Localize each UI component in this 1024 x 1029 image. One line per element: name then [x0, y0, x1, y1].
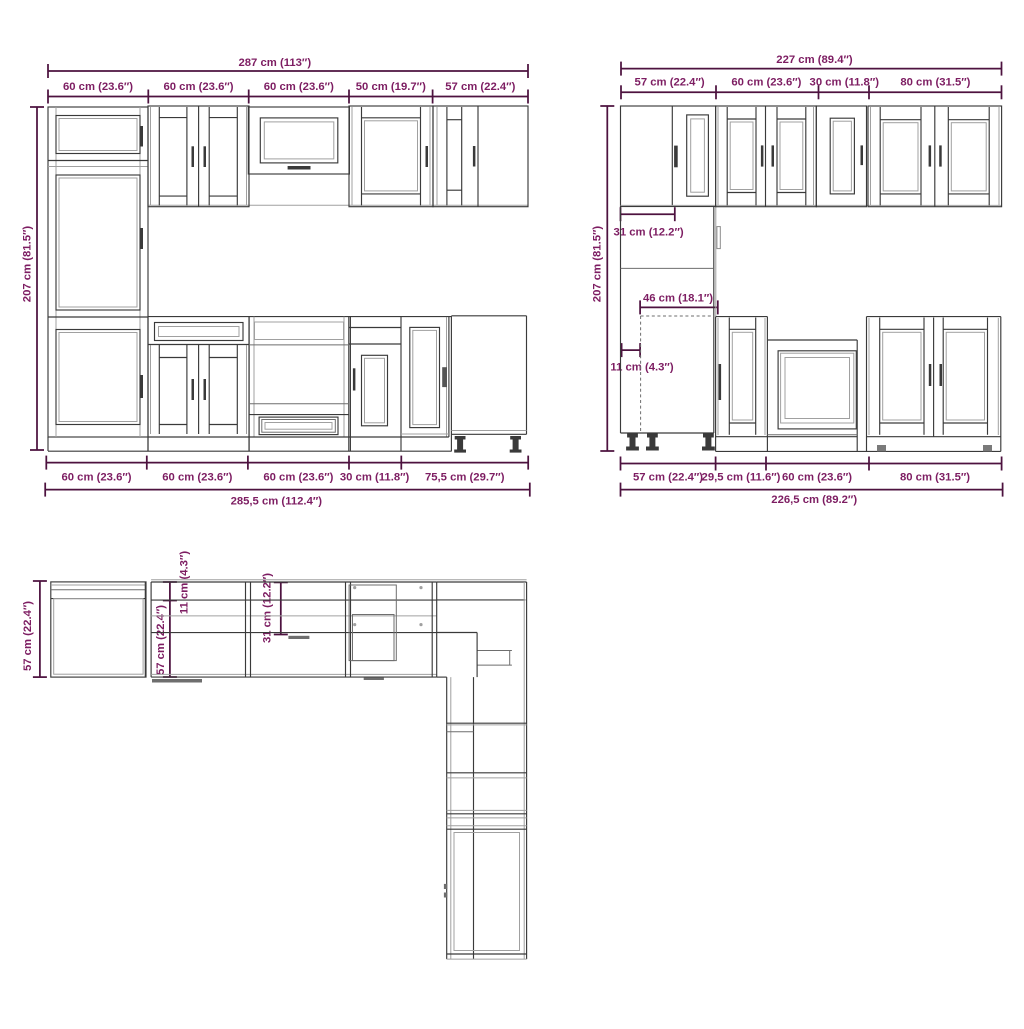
svg-text:57 cm (22.4″): 57 cm (22.4″) [22, 601, 34, 671]
svg-text:29,5 cm (11.6″): 29,5 cm (11.6″) [702, 472, 781, 484]
svg-text:50 cm (19.7″): 50 cm (19.7″) [356, 81, 426, 93]
svg-text:57 cm (22.4″): 57 cm (22.4″) [635, 77, 705, 89]
svg-text:80 cm (31.5″): 80 cm (31.5″) [900, 77, 970, 89]
svg-text:60 cm (23.6″): 60 cm (23.6″) [782, 472, 852, 484]
svg-text:57 cm (22.4″): 57 cm (22.4″) [155, 605, 167, 675]
svg-text:60 cm (23.6″): 60 cm (23.6″) [63, 81, 133, 93]
svg-text:207 cm (81.5″): 207 cm (81.5″) [592, 226, 604, 303]
svg-text:30 cm (11.8″): 30 cm (11.8″) [810, 77, 880, 89]
svg-text:60 cm (23.6″): 60 cm (23.6″) [263, 472, 333, 484]
svg-text:285,5 cm (112.4″): 285,5 cm (112.4″) [231, 496, 323, 508]
svg-text:11 cm (4.3″): 11 cm (4.3″) [610, 362, 673, 374]
svg-text:75,5 cm (29.7″): 75,5 cm (29.7″) [425, 472, 505, 484]
svg-text:46 cm (18.1″): 46 cm (18.1″) [643, 293, 713, 305]
svg-text:30 cm (11.8″): 30 cm (11.8″) [340, 472, 410, 484]
svg-text:60 cm (23.6″): 60 cm (23.6″) [264, 81, 334, 93]
svg-text:226,5 cm (89.2″): 226,5 cm (89.2″) [771, 494, 857, 506]
svg-text:227 cm (89.4″): 227 cm (89.4″) [776, 54, 853, 66]
svg-text:60 cm (23.6″): 60 cm (23.6″) [731, 77, 801, 89]
svg-text:60 cm (23.6″): 60 cm (23.6″) [61, 472, 131, 484]
svg-text:57 cm (22.4″): 57 cm (22.4″) [633, 472, 703, 484]
svg-text:60 cm (23.6″): 60 cm (23.6″) [163, 81, 233, 93]
svg-text:287 cm (113″): 287 cm (113″) [238, 57, 311, 69]
svg-text:57 cm (22.4″): 57 cm (22.4″) [445, 81, 515, 93]
svg-text:207 cm (81.5″): 207 cm (81.5″) [22, 226, 34, 303]
svg-text:80 cm (31.5″): 80 cm (31.5″) [900, 472, 970, 484]
svg-text:60 cm (23.6″): 60 cm (23.6″) [162, 472, 232, 484]
svg-text:31 cm (12.2″): 31 cm (12.2″) [614, 227, 684, 239]
